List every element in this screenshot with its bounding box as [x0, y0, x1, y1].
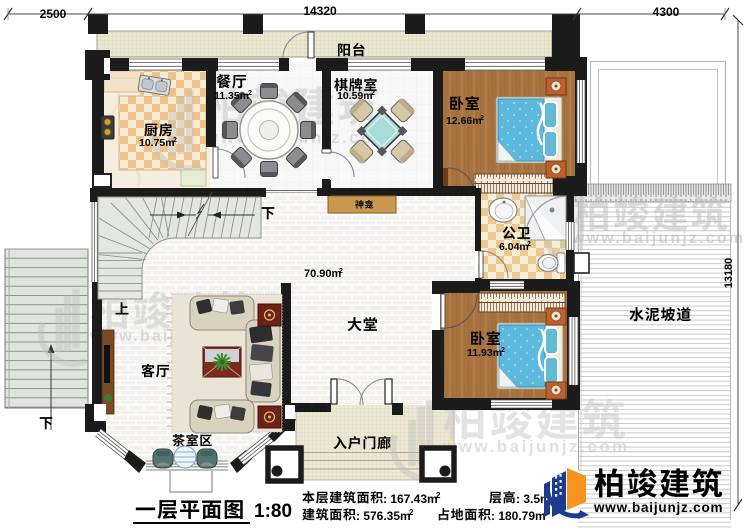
- svg-text:2500: 2500: [40, 7, 67, 21]
- svg-text:: 576.35m: : 576.35m: [356, 509, 411, 523]
- svg-text:2: 2: [173, 137, 177, 144]
- svg-text:2: 2: [527, 241, 531, 248]
- svg-text:2: 2: [480, 115, 484, 122]
- svg-text:4300: 4300: [653, 5, 680, 19]
- svg-text:10.59m: 10.59m: [337, 90, 373, 102]
- svg-text:: 180.79m: : 180.79m: [491, 509, 546, 523]
- svg-text:: 167.43m: : 167.43m: [383, 492, 438, 506]
- svg-text:11.35m: 11.35m: [214, 90, 249, 102]
- svg-text:2: 2: [339, 268, 343, 275]
- svg-text:2: 2: [501, 347, 505, 354]
- svg-text:www.baijunjz.com: www.baijunjz.com: [593, 500, 723, 515]
- svg-text:www.baijunjz.com: www.baijunjz.com: [442, 437, 630, 456]
- svg-text:2: 2: [409, 508, 414, 517]
- svg-text:14320: 14320: [303, 4, 337, 18]
- svg-text:70.90m: 70.90m: [304, 268, 342, 280]
- svg-text:www.baijunjz.com: www.baijunjz.com: [571, 230, 745, 247]
- svg-text:13180: 13180: [723, 258, 735, 289]
- svg-text:2: 2: [371, 90, 375, 97]
- svg-text:1:80: 1:80: [254, 501, 292, 522]
- svg-text:6.04m: 6.04m: [499, 241, 529, 253]
- svg-text:12.66m: 12.66m: [446, 115, 482, 127]
- svg-text:2: 2: [248, 90, 252, 97]
- svg-text:10.75m: 10.75m: [139, 137, 175, 149]
- svg-text:2: 2: [436, 491, 441, 500]
- svg-text:11.93m: 11.93m: [467, 347, 502, 359]
